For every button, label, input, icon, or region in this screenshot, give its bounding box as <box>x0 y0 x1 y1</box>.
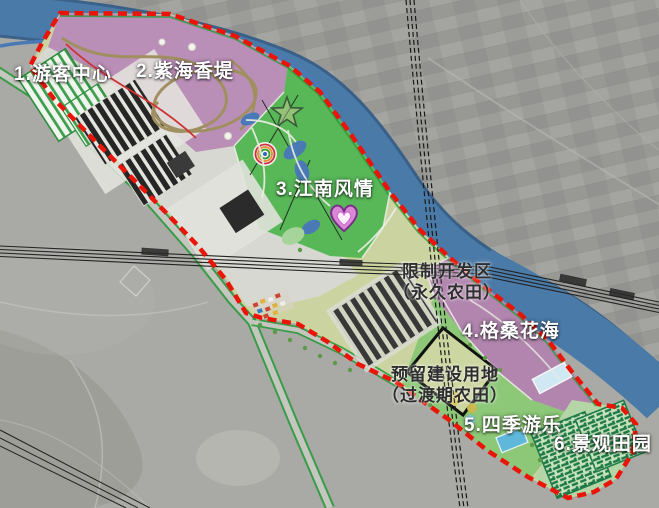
map-canvas <box>0 0 659 508</box>
rainbow-spiral <box>253 142 277 166</box>
site-plan-map: 1.游客中心 2.紫海香堤 3.江南风情 4.格桑花海 5.四季游乐 6.景观田… <box>0 0 659 508</box>
